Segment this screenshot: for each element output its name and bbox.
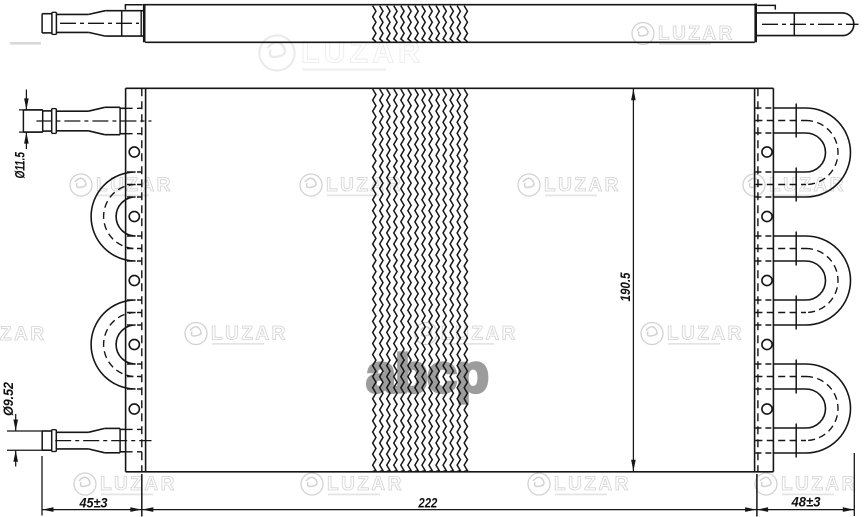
svg-text:LUZAR: LUZAR	[211, 324, 288, 345]
svg-text:LUZAR: LUZAR	[301, 36, 424, 70]
svg-text:LUZAR: LUZAR	[658, 24, 735, 45]
svg-text:LUZAR: LUZAR	[326, 175, 403, 196]
svg-text:45±3: 45±3	[79, 496, 108, 511]
svg-text:222: 222	[418, 495, 438, 510]
svg-text:LUZAR: LUZAR	[544, 175, 621, 196]
svg-text:LUZAR: LUZAR	[667, 324, 744, 345]
svg-text:LUZAR: LUZAR	[554, 474, 631, 495]
svg-text:abcp: abcp	[366, 344, 488, 404]
svg-text:LUZAR: LUZAR	[327, 474, 404, 495]
svg-text:Ø11.5: Ø11.5	[13, 152, 28, 179]
svg-text:ZAR: ZAR	[0, 324, 47, 345]
svg-text:LUZAR: LUZAR	[96, 175, 173, 196]
svg-text:Ø9.52: Ø9.52	[1, 382, 16, 416]
svg-text:LUZAR: LUZAR	[769, 175, 846, 196]
svg-text:190.5: 190.5	[618, 272, 633, 301]
svg-text:LUZAR: LUZAR	[781, 474, 858, 495]
svg-text:48±3: 48±3	[791, 494, 821, 509]
svg-text:LUZAR: LUZAR	[100, 474, 177, 495]
